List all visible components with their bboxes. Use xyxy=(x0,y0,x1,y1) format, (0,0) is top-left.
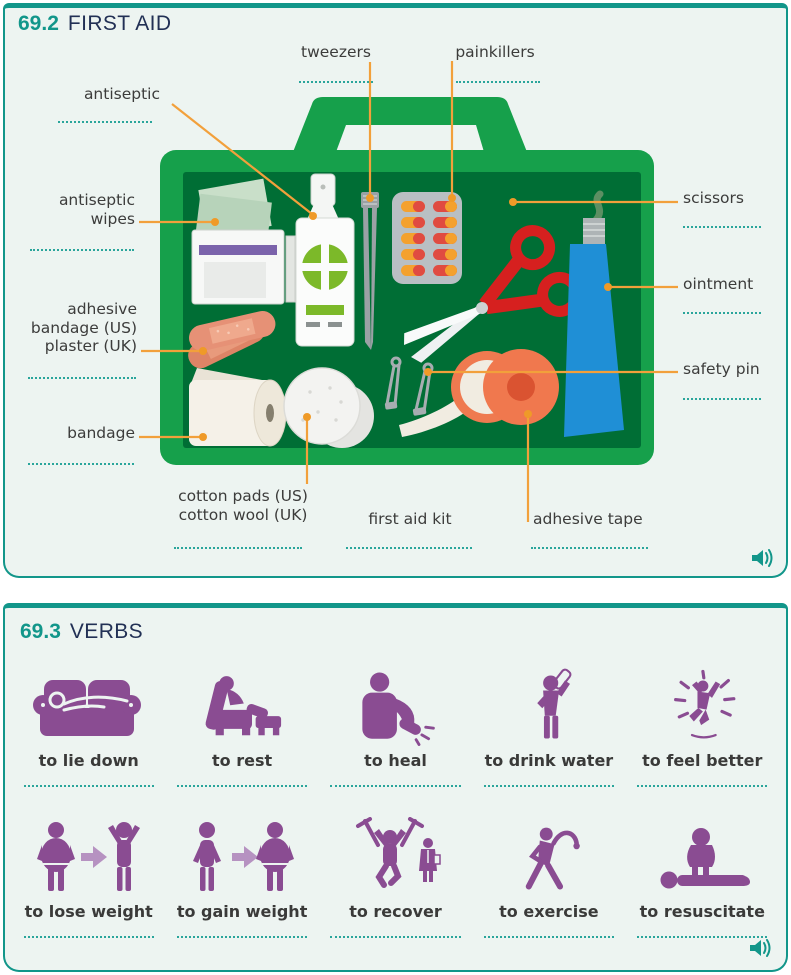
verb-label: to feel better xyxy=(627,751,778,770)
answer-line xyxy=(24,785,154,787)
drink-water-icon xyxy=(507,662,591,746)
label-bandage: bandage xyxy=(40,424,135,443)
resuscitate-icon xyxy=(644,827,760,897)
label-antiseptic-wipes: antiseptic wipes xyxy=(20,191,135,228)
label-ointment: ointment xyxy=(683,275,783,294)
vocabulary-page: 69.2FIRST AID xyxy=(0,0,791,975)
verb-label: to resuscitate xyxy=(627,902,778,921)
speaker-icon xyxy=(749,938,773,958)
rest-icon xyxy=(192,670,292,746)
audio-button[interactable] xyxy=(748,938,774,960)
verb-item: to gain weight xyxy=(166,811,317,938)
panel-verbs: 69.3VERBS to lie down xyxy=(3,603,788,972)
panel-first-aid: 69.2FIRST AID xyxy=(3,3,788,578)
verb-item: to heal xyxy=(320,660,471,787)
answer-line xyxy=(531,547,648,549)
answer-line xyxy=(456,81,540,83)
label-first-aid-kit: first aid kit xyxy=(345,510,475,529)
answer-line xyxy=(330,785,460,787)
verbs-grid: to lie down to rest xyxy=(5,644,786,938)
answer-line xyxy=(346,547,472,549)
verb-item: to lie down xyxy=(13,660,164,787)
answer-line xyxy=(484,785,614,787)
verb-label: to exercise xyxy=(473,902,624,921)
section-title: VERBS xyxy=(70,620,143,643)
verb-label: to drink water xyxy=(473,751,624,770)
label-adhesive-bandage: adhesive bandage (US) plaster (UK) xyxy=(15,300,137,356)
label-cotton-pads: cotton pads (US) cotton wool (UK) xyxy=(160,487,326,524)
label-painkillers: painkillers xyxy=(445,43,545,62)
answer-line xyxy=(683,226,761,228)
label-scissors: scissors xyxy=(683,189,783,208)
lose-weight-icon xyxy=(31,819,147,897)
exercise-icon xyxy=(503,819,595,897)
verb-item: to drink water xyxy=(473,660,624,787)
audio-button[interactable] xyxy=(750,548,776,570)
verb-item: to lose weight xyxy=(13,811,164,938)
recover-icon xyxy=(345,817,445,897)
speaker-icon xyxy=(751,548,775,568)
answer-line xyxy=(28,377,136,379)
verb-item: to resuscitate xyxy=(627,811,778,938)
verb-label: to gain weight xyxy=(166,902,317,921)
feel-better-icon xyxy=(652,666,752,746)
verb-label: to heal xyxy=(320,751,471,770)
lie-down-icon xyxy=(33,670,145,746)
verb-item: to feel better xyxy=(627,660,778,787)
panel-verbs-header: 69.3VERBS xyxy=(5,608,786,644)
answer-line xyxy=(58,121,152,123)
answer-line xyxy=(330,936,460,938)
verb-item: to rest xyxy=(166,660,317,787)
label-tweezers: tweezers xyxy=(288,43,384,62)
answer-line xyxy=(683,398,761,400)
gain-weight-icon xyxy=(184,819,300,897)
label-safety-pin: safety pin xyxy=(683,360,783,379)
answer-line xyxy=(24,936,154,938)
verb-item: to exercise xyxy=(473,811,624,938)
heal-icon xyxy=(347,670,443,746)
verb-label: to recover xyxy=(320,902,471,921)
verb-label: to lose weight xyxy=(13,902,164,921)
painkillers-art xyxy=(392,192,462,284)
answer-line xyxy=(30,249,134,251)
answer-line xyxy=(174,547,302,549)
answer-line xyxy=(28,463,134,465)
answer-line xyxy=(177,936,307,938)
section-number: 69.3 xyxy=(20,620,61,643)
label-adhesive-tape: adhesive tape xyxy=(533,510,663,529)
answer-line xyxy=(637,785,767,787)
verb-label: to rest xyxy=(166,751,317,770)
verb-item: to recover xyxy=(320,811,471,938)
answer-line xyxy=(683,312,761,314)
verb-label: to lie down xyxy=(13,751,164,770)
answer-line xyxy=(484,936,614,938)
label-antiseptic: antiseptic xyxy=(40,85,160,104)
answer-line xyxy=(177,785,307,787)
answer-line xyxy=(299,81,373,83)
